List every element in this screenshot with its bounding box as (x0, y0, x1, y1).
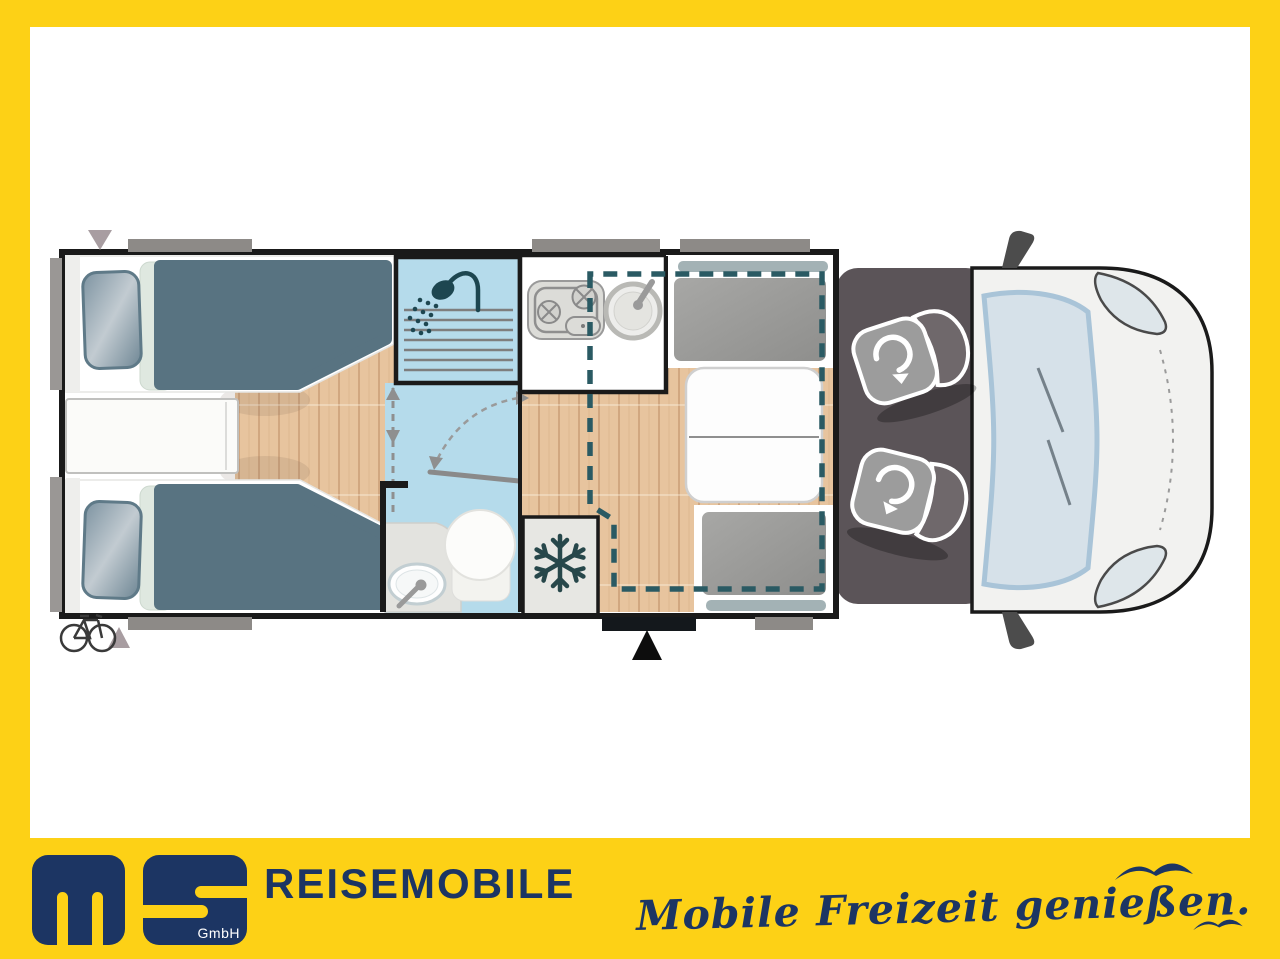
entry-arrow-icon (632, 630, 662, 660)
window-bar-rear-left (50, 258, 62, 390)
logo-s-slot (143, 905, 208, 918)
logo-s-block: GmbH (143, 855, 247, 945)
floorplan-graphic (30, 27, 1250, 838)
window-bar-rear-right (50, 477, 62, 612)
mirror-left (1002, 231, 1034, 268)
bathroom-wall (380, 486, 386, 612)
mirror-right (1002, 612, 1034, 649)
window-bar-top-rear (128, 239, 252, 252)
logo-suffix: GmbH (198, 925, 240, 941)
basin-faucet-base (416, 580, 427, 591)
stove-control-dot (581, 324, 585, 328)
windshield (984, 292, 1097, 587)
plan-canvas (30, 27, 1250, 838)
bathroom (380, 257, 529, 613)
toilet-bowl (445, 510, 515, 580)
window-marker-triangle-top (88, 230, 112, 250)
bench-headrest-bar (678, 261, 828, 272)
pillow (82, 501, 141, 599)
window-bar-top-kitchen (532, 239, 660, 252)
bird-icon (1113, 856, 1195, 888)
logo-m-slit (57, 892, 68, 945)
window-bar-bottom-dinette (755, 617, 813, 630)
vehicle-front (972, 231, 1212, 649)
logo-m-block (32, 855, 125, 945)
bird-icon (1192, 914, 1244, 936)
entry-door-bar (602, 617, 696, 631)
logo-m-slit (92, 892, 103, 945)
bench-headrest-bar (706, 600, 826, 611)
bicycle-icon (61, 615, 115, 651)
dinette-table (686, 368, 822, 502)
shower-tray-lines (404, 310, 513, 370)
bench-front-cushion (672, 276, 828, 363)
refrigerator (523, 517, 598, 615)
headboard-shelf (66, 256, 80, 392)
bench-rear-cushion (700, 510, 828, 597)
kitchen-sink-inner (614, 292, 652, 330)
pillow (82, 271, 141, 369)
company-name: REISEMOBILE (264, 860, 575, 908)
window-bar-top-dinette (680, 239, 810, 252)
kitchen-faucet-base (633, 300, 643, 310)
bedside-cabinet (66, 399, 238, 473)
window-bar-bottom-rear (128, 617, 252, 630)
logo-s-slot (195, 886, 247, 898)
headboard-shelf (66, 478, 80, 614)
footer-band: GmbH REISEMOBILE Mobile Freizeit genieße… (0, 838, 1280, 959)
